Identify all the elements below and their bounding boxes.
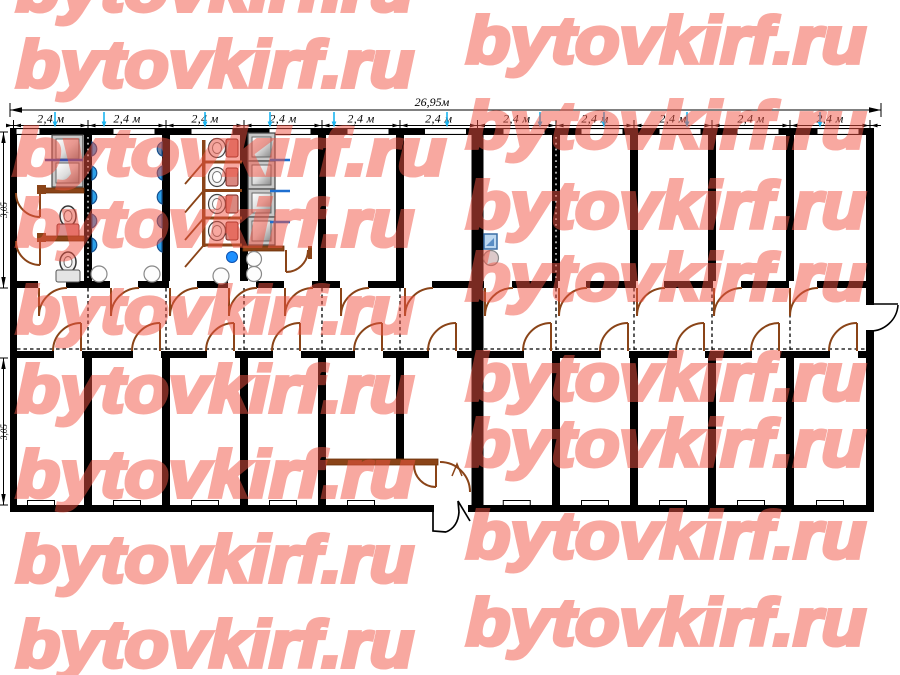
svg-text:bytovkirf.ru: bytovkirf.ru xyxy=(16,27,414,101)
svg-text:bytovkirf.ru: bytovkirf.ru xyxy=(16,607,414,675)
svg-text:bytovkirf.ru: bytovkirf.ru xyxy=(13,115,446,189)
svg-text:bytovkirf.ru: bytovkirf.ru xyxy=(466,168,866,242)
svg-text:bytovkirf.ru: bytovkirf.ru xyxy=(466,498,866,572)
svg-text:bytovkirf.ru: bytovkirf.ru xyxy=(16,352,414,426)
svg-text:bytovkirf.ru: bytovkirf.ru xyxy=(466,585,866,659)
svg-text:bytovkirf.ru: bytovkirf.ru xyxy=(16,437,414,511)
svg-text:bytovkirf.ru: bytovkirf.ru xyxy=(466,406,866,480)
svg-text:bytovkirf.ru: bytovkirf.ru xyxy=(16,522,414,596)
svg-text:bytovkirf.ru: bytovkirf.ru xyxy=(466,340,866,414)
svg-text:26,95м: 26,95м xyxy=(415,95,450,109)
svg-text:3,05: 3,05 xyxy=(0,424,9,441)
svg-text:bytovkirf.ru: bytovkirf.ru xyxy=(16,186,414,260)
svg-text:bytovkirf.ru: bytovkirf.ru xyxy=(466,88,866,162)
svg-text:bytovkirf.ru: bytovkirf.ru xyxy=(16,0,414,25)
svg-text:3,05: 3,05 xyxy=(0,202,9,219)
svg-text:bytovkirf.ru: bytovkirf.ru xyxy=(466,240,866,314)
svg-text:bytovkirf.ru: bytovkirf.ru xyxy=(466,3,866,77)
svg-text:bytovkirf.ru: bytovkirf.ru xyxy=(16,273,414,347)
